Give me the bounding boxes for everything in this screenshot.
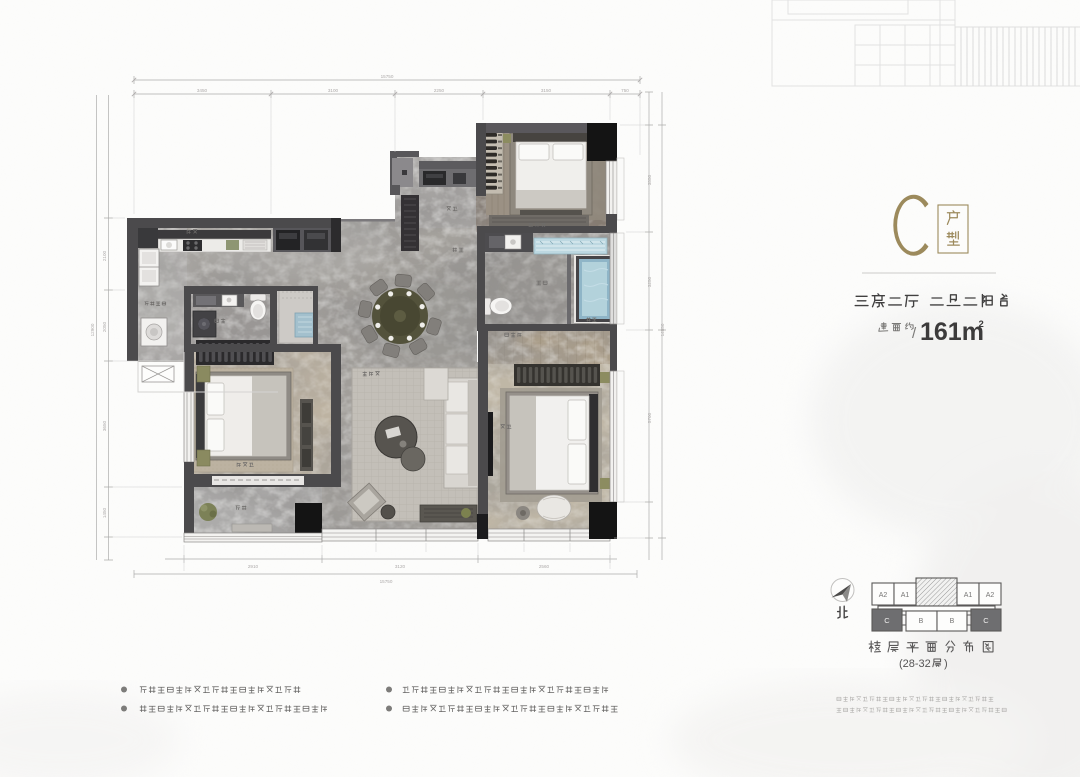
svg-text:3120: 3120 bbox=[395, 564, 406, 569]
svg-text:2100: 2100 bbox=[102, 250, 107, 261]
svg-text:C: C bbox=[884, 616, 890, 625]
svg-text:2050: 2050 bbox=[102, 321, 107, 332]
svg-text:2560: 2560 bbox=[539, 564, 550, 569]
svg-text:3550: 3550 bbox=[647, 174, 652, 185]
svg-text:A2: A2 bbox=[879, 592, 888, 599]
svg-text:12900: 12900 bbox=[90, 323, 95, 336]
svg-text:5700: 5700 bbox=[647, 412, 652, 423]
svg-text:14850: 14850 bbox=[660, 323, 665, 336]
svg-text:3100: 3100 bbox=[328, 88, 339, 93]
svg-text:A2: A2 bbox=[986, 592, 995, 599]
svg-text:B: B bbox=[919, 618, 924, 625]
svg-text:15750: 15750 bbox=[381, 74, 394, 79]
svg-text:1450: 1450 bbox=[102, 507, 107, 518]
svg-text:2910: 2910 bbox=[248, 564, 259, 569]
svg-text:750: 750 bbox=[621, 88, 629, 93]
svg-text:): ) bbox=[944, 658, 948, 670]
svg-text:3450: 3450 bbox=[197, 88, 208, 93]
svg-text:3250: 3250 bbox=[647, 276, 652, 287]
svg-text:3650: 3650 bbox=[102, 420, 107, 431]
svg-text:A1: A1 bbox=[901, 592, 910, 599]
svg-text:2: 2 bbox=[979, 319, 984, 330]
svg-text:B: B bbox=[950, 618, 955, 625]
svg-text:15750: 15750 bbox=[380, 579, 393, 584]
svg-text:161m: 161m bbox=[920, 318, 984, 346]
svg-text:A1: A1 bbox=[964, 592, 973, 599]
svg-text:3150: 3150 bbox=[541, 88, 552, 93]
svg-text:2250: 2250 bbox=[434, 88, 445, 93]
svg-text:C: C bbox=[983, 616, 989, 625]
svg-text:(28-32: (28-32 bbox=[899, 658, 931, 670]
